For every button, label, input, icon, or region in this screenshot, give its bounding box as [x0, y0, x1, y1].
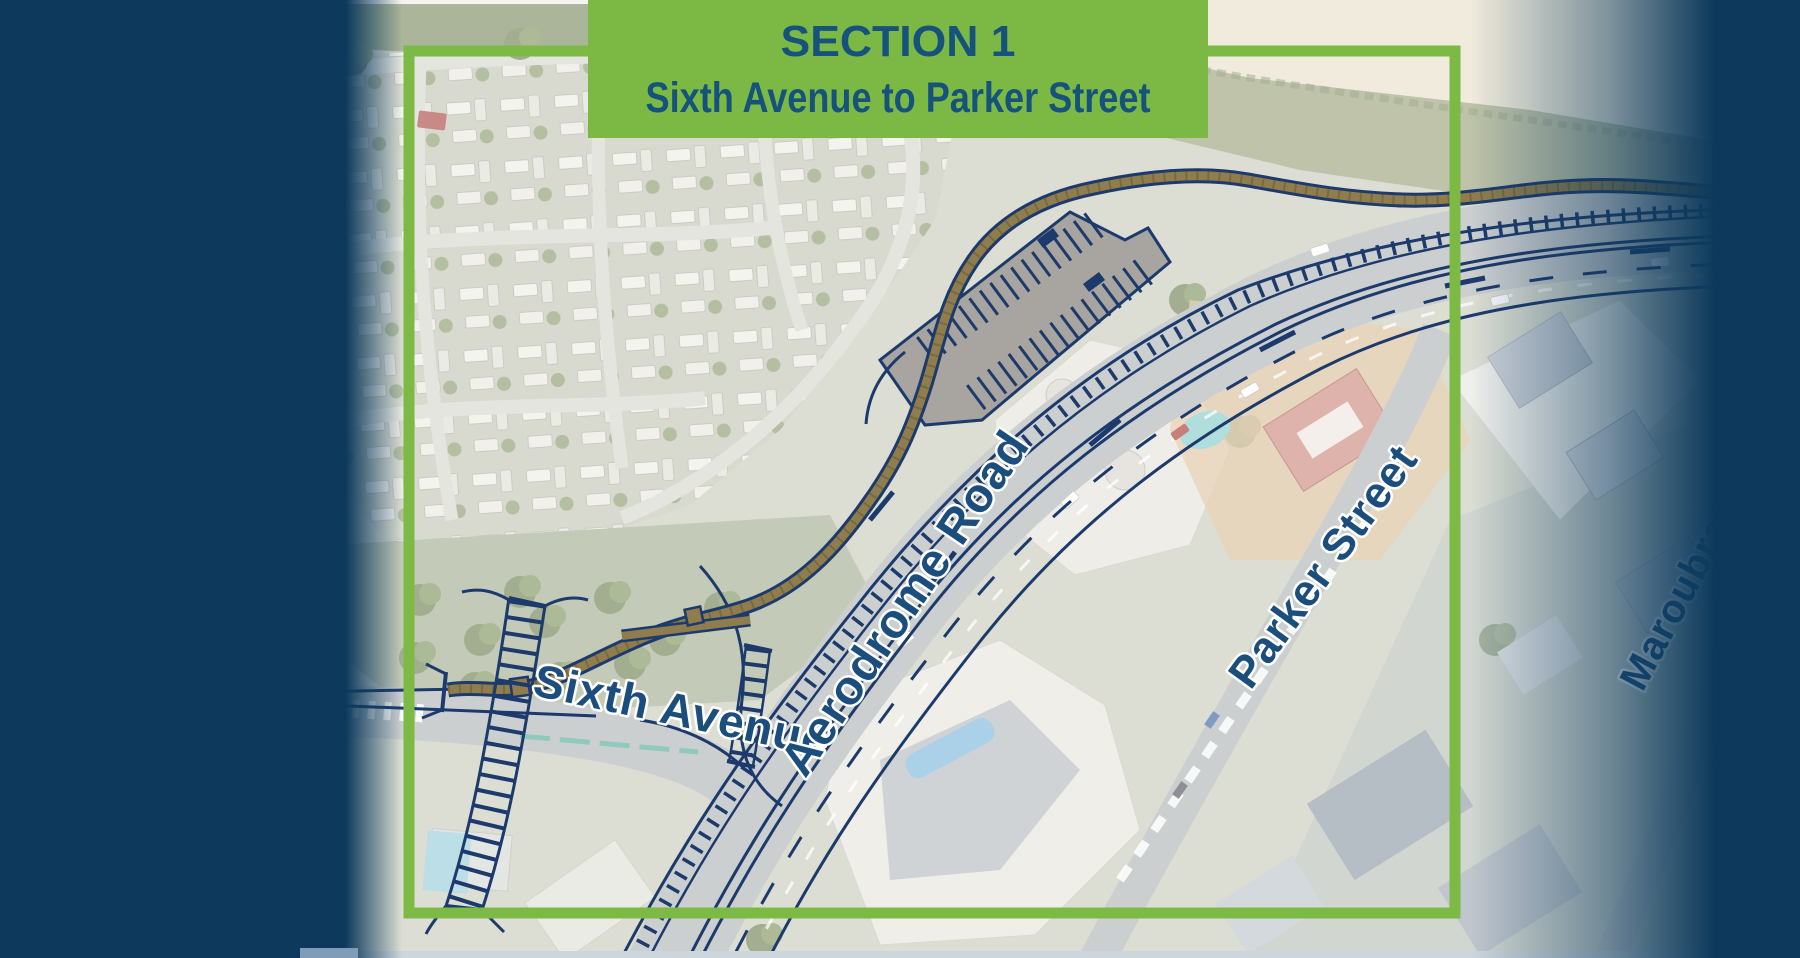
- section-map-figure: Sixth Avenue Aerodrome Road Parker Stree…: [0, 0, 1800, 958]
- banner-title: SECTION 1: [781, 17, 1016, 66]
- left-navy-band: [0, 0, 402, 958]
- banner-subtitle: Sixth Avenue to Parker Street: [646, 74, 1151, 122]
- right-navy-band: [1470, 0, 1800, 958]
- map-canvas: Sixth Avenue Aerodrome Road Parker Stree…: [0, 0, 1800, 958]
- bottom-left-accent: [300, 948, 358, 958]
- title-banner: SECTION 1 Sixth Avenue to Parker Street: [588, 0, 1208, 138]
